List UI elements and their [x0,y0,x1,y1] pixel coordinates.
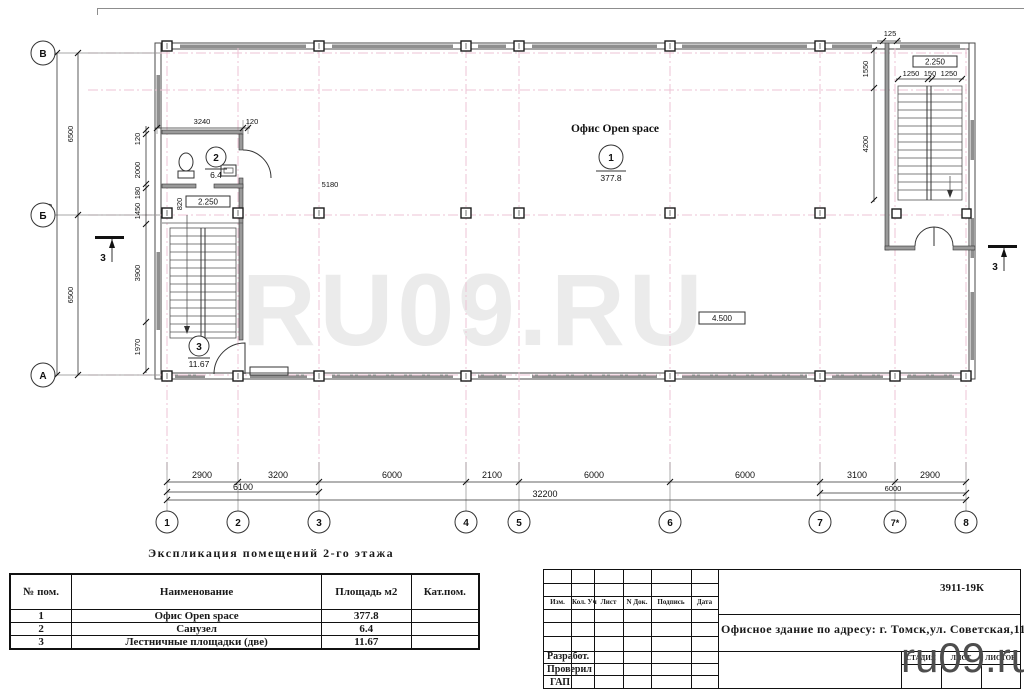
grid-col-6: 6 [667,518,673,529]
tb-col-data: Дата [692,598,717,606]
left-staircase [170,215,236,338]
stair-treads-left [170,236,236,332]
exterior-walls [155,43,975,379]
cell-area: 6.4 [321,623,411,636]
stair-treads-right [898,94,962,190]
tb-col-list: Лист [595,598,622,606]
room1-name: Офис Open space [571,123,659,135]
schedule-title: Экспликация помещений 2-го этажа [148,546,394,561]
cell-num: 2 [10,623,72,636]
titleblock-line [691,570,692,688]
elevation-wc: 2.250 [186,196,230,207]
dim-bay-4: 2100 [482,470,502,480]
tb-col-koluch: Кол. Уч [572,598,593,606]
cell-name: Офис Open space [72,610,322,623]
grid-col-7: 7 [817,518,823,529]
room2-number: 2 [213,153,219,164]
table-row: 3 Лестничные площадки (две) 11.67 [10,636,479,650]
dim-chain-1970: 1970 [133,339,142,356]
elevation-hall-value: 4.500 [712,314,733,323]
schedule-header-num: № пом. [10,574,72,610]
room3-number: 3 [196,342,202,353]
ceiling-height-text: 5180 [322,180,339,189]
cell-num: 1 [10,610,72,623]
cell-name: Лестничные площадки (две) [72,636,322,650]
room-tag-1: Офис Open space 1 377.8 [571,123,659,183]
titleblock-line [544,609,718,610]
dim-bay-8: 2900 [920,470,940,480]
section-marker-left: 3 [95,236,124,264]
schedule-table: № пом. Наименование Площадь м2 Кат.пом. … [9,573,480,650]
grid-row-a: А [39,371,46,382]
titleblock-line [544,636,718,637]
grid-col-2: 2 [235,518,241,529]
dim-stair2-1550: 1550 [861,61,870,78]
cell-num: 3 [10,636,72,650]
grid-row-b: Б [39,211,46,222]
dim-stair2-w3: 1250 [941,69,958,78]
dim-left-span-1: 6500 [66,126,75,143]
titleblock-line [718,570,719,688]
table-row: 2 Санузел 6.4 [10,623,479,636]
room2-area: 6.4 [210,170,222,180]
cell-name: Санузел [72,623,322,636]
watermark-corner: ru09.ru [901,634,1024,682]
dim-stair2-w2: 150 [924,69,937,78]
room1-area: 377.8 [600,173,622,183]
dim-bay-5: 6000 [584,470,604,480]
cell-area: 11.67 [321,636,411,650]
cell-area: 377.8 [321,610,411,623]
schedule-header-name: Наименование [72,574,322,610]
dim-wc-door: 820 [175,198,184,211]
schedule-header-cat: Кат.пом. [411,574,479,610]
dim-stair2-w1: 1250 [903,69,920,78]
role-gap: ГАП [550,677,570,688]
titleblock-line [651,570,652,688]
grid-axes [88,48,970,470]
tb-col-izm: Изм. [545,598,570,606]
dim-bay-2: 3200 [268,470,288,480]
grid-col-8: 8 [963,518,969,529]
grid-col-4: 4 [463,518,469,529]
section-label-right: 3 [992,262,998,273]
left-inner-chain: 120 2000 180 1450 3900 1970 [133,126,149,374]
dim-chain-1450: 1450 [133,203,142,220]
dim-chain-3900: 3900 [133,265,142,282]
floor-plan: Офис Open space 1 377.8 2 6.4 3 11.67 2.… [0,0,1024,565]
titleblock-line [544,675,718,676]
toilet-icon [178,153,194,178]
room1-number: 1 [608,153,614,164]
dim-bay-7: 3100 [847,470,867,480]
grid-row-v: В [39,49,46,60]
grid-col-1: 1 [164,518,170,529]
section-label-left: 3 [100,253,106,264]
dim-wc-width: 3240 [194,117,211,126]
cell-cat [411,623,479,636]
role-developer: Разработ. [547,651,589,662]
elevation-hall: 4.500 [699,312,745,324]
dim-bay-6: 6000 [735,470,755,480]
dim-bay-3: 6000 [382,470,402,480]
grid-col-3: 3 [316,518,322,529]
cell-cat [411,610,479,623]
dim-sub-6000: 6000 [885,484,902,493]
elevation-stair: 2.250 [913,56,957,67]
section-marker-right: 3 [988,245,1017,273]
dim-bay-1: 2900 [192,470,212,480]
schedule-header-row: № пом. Наименование Площадь м2 Кат.пом. [10,574,479,610]
dim-total: 32200 [532,489,557,499]
columns [162,41,971,381]
room3-area: 11.67 [189,359,210,369]
sink-icon [221,165,236,176]
dim-chain-120: 120 [133,133,142,146]
titleblock-line [544,596,718,597]
windows [157,45,975,379]
dim-stair2-offset: 125 [884,29,897,38]
titleblock-line [544,622,718,623]
elevation-stair-value: 2.250 [925,58,946,67]
titleblock-line [718,614,1020,615]
elevation-wc-value: 2.250 [198,198,219,207]
titleblock-line [623,570,624,688]
dim-left-span-2: 6500 [66,287,75,304]
role-checker: Проверил [547,664,592,675]
dim-chain-2000: 2000 [133,162,142,179]
grid-col-5: 5 [516,518,522,529]
cell-cat [411,636,479,650]
right-stair-dimensions: 125 1550 4200 1250 150 1250 [861,29,965,203]
titleblock-line [594,570,595,688]
dim-sub-6100: 6100 [233,482,253,492]
tb-col-ndok: N Док. [624,598,650,606]
right-staircase [898,86,962,200]
titleblock-line [544,583,718,584]
dim-chain-180: 180 [133,187,142,200]
doc-number: 3911-19К [912,582,1012,594]
dim-wc-wall: 120 [246,117,259,126]
tb-col-podpis: Подпись [652,598,690,606]
room-tag-3: 3 11.67 [188,336,210,369]
schedule-header-area: Площадь м2 [321,574,411,610]
bottom-dimensions: 2900 3200 6000 2100 6000 6000 3100 2900 … [164,462,969,511]
table-row: 1 Офис Open space 377.8 [10,610,479,623]
bottom-grid-bubbles: 1 2 3 4 5 6 7 7* 8 [156,511,977,533]
room-tag-2: 2 6.4 [205,147,227,180]
dim-stair2-4200: 4200 [861,136,870,153]
grid-col-7a: 7* [891,518,900,528]
